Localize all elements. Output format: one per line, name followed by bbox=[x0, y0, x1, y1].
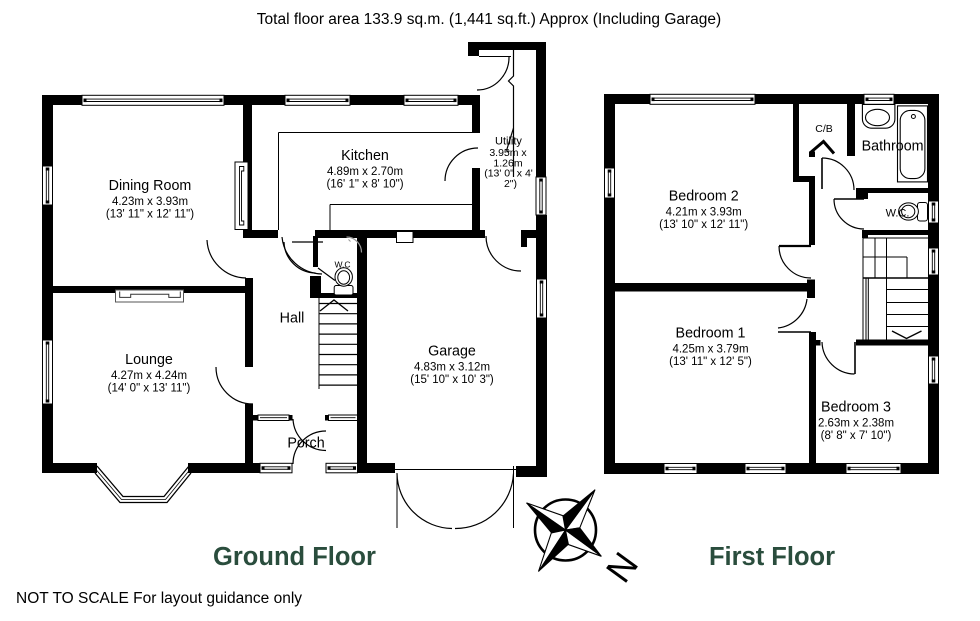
svg-text:2"): 2") bbox=[504, 178, 517, 190]
svg-text:Garage: Garage bbox=[428, 344, 476, 360]
svg-text:Kitchen: Kitchen bbox=[341, 148, 389, 164]
svg-text:(13' 11" x 12' 5"): (13' 11" x 12' 5") bbox=[669, 356, 752, 368]
svg-text:(8' 8" x 7' 10"): (8' 8" x 7' 10") bbox=[821, 430, 892, 442]
svg-text:Porch: Porch bbox=[287, 436, 324, 452]
svg-text:NOT TO SCALE For layout guidan: NOT TO SCALE For layout guidance only bbox=[16, 590, 302, 607]
svg-text:4.83m x 3.12m: 4.83m x 3.12m bbox=[414, 361, 490, 373]
svg-text:Dining Room: Dining Room bbox=[109, 178, 192, 194]
svg-text:Bathroom: Bathroom bbox=[862, 139, 924, 155]
svg-text:Utility: Utility bbox=[495, 136, 522, 148]
svg-text:4.21m x 3.93m: 4.21m x 3.93m bbox=[666, 206, 742, 218]
svg-text:W.C.: W.C. bbox=[886, 208, 910, 220]
svg-text:4.25m x 3.79m: 4.25m x 3.79m bbox=[672, 343, 748, 355]
svg-text:(15' 10" x 10' 3"): (15' 10" x 10' 3") bbox=[410, 374, 494, 386]
svg-text:(16' 1" x 8' 10"): (16' 1" x 8' 10") bbox=[326, 178, 403, 190]
svg-text:(14' 0" x 13' 11"): (14' 0" x 13' 11") bbox=[108, 382, 191, 394]
svg-text:4.89m x 2.70m: 4.89m x 2.70m bbox=[327, 166, 403, 178]
svg-text:4.23m x 3.93m: 4.23m x 3.93m bbox=[112, 196, 188, 208]
svg-text:W.C: W.C bbox=[334, 260, 350, 270]
svg-text:Ground Floor: Ground Floor bbox=[213, 543, 376, 571]
svg-text:Bedroom 1: Bedroom 1 bbox=[676, 326, 746, 342]
svg-text:First Floor: First Floor bbox=[709, 543, 835, 571]
svg-text:Hall: Hall bbox=[280, 311, 305, 327]
svg-text:Lounge: Lounge bbox=[125, 352, 173, 368]
svg-text:4.27m x 4.24m: 4.27m x 4.24m bbox=[111, 370, 187, 382]
svg-text:Bedroom 2: Bedroom 2 bbox=[669, 189, 739, 205]
svg-text:(13' 11" x 12' 11"): (13' 11" x 12' 11") bbox=[106, 208, 194, 220]
svg-text:Bedroom 3: Bedroom 3 bbox=[821, 400, 891, 416]
svg-text:C/B: C/B bbox=[815, 123, 833, 135]
svg-text:Total floor area 133.9 sq.m. (: Total floor area 133.9 sq.m. (1,441 sq.f… bbox=[257, 11, 721, 28]
svg-text:2.63m x 2.38m: 2.63m x 2.38m bbox=[818, 417, 894, 429]
svg-text:(13' 10" x 12' 11"): (13' 10" x 12' 11") bbox=[659, 219, 748, 231]
